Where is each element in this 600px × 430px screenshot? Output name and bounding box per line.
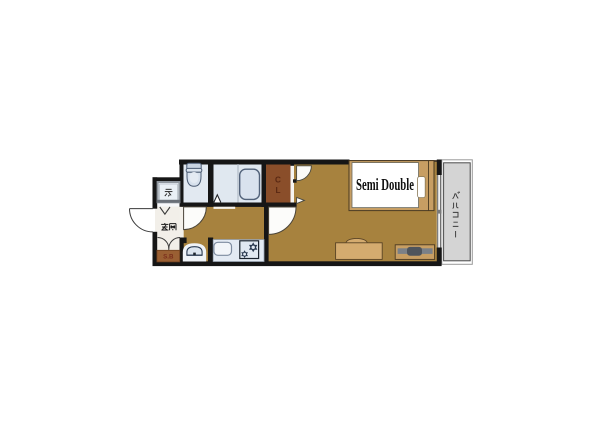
svg-text:Semi Double: Semi Double: [356, 175, 414, 194]
svg-text:C: C: [275, 176, 281, 185]
svg-text:L: L: [275, 186, 280, 195]
svg-text:S.B: S.B: [163, 254, 174, 261]
